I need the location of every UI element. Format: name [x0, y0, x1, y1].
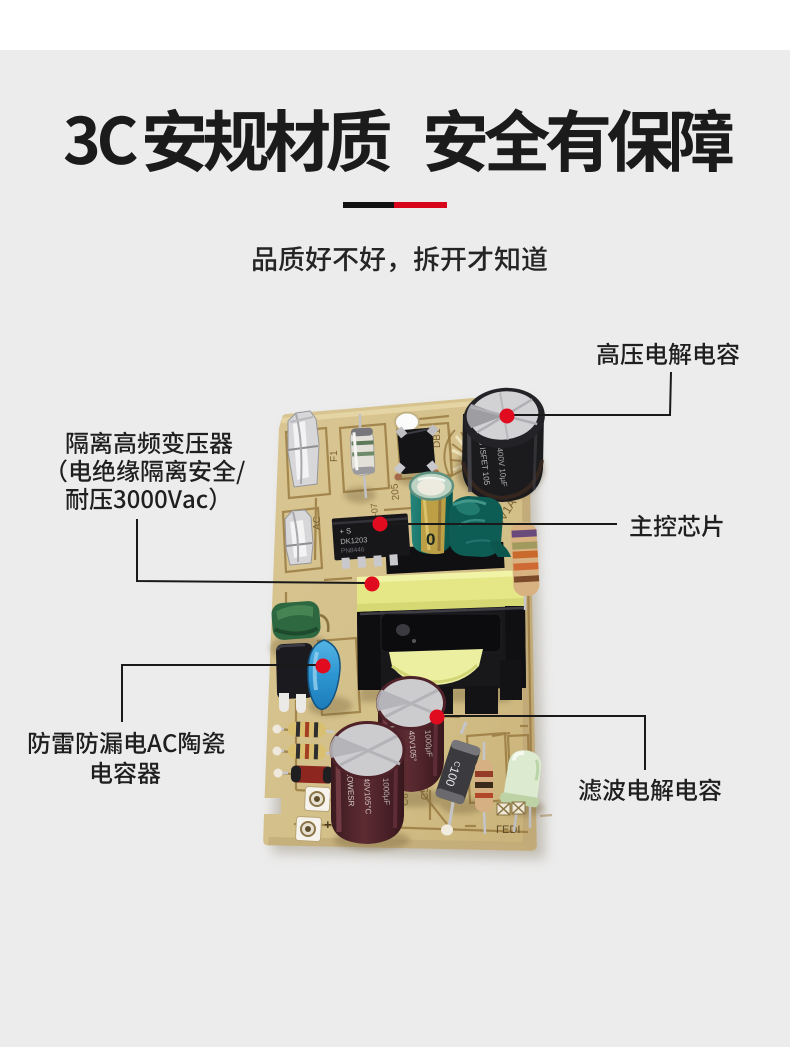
- svg-text:0: 0: [426, 530, 435, 549]
- svg-text:ΓEDI: ΓEDI: [496, 824, 520, 836]
- svg-text:AC: AC: [312, 516, 323, 530]
- svg-text:205: 205: [390, 483, 402, 501]
- svg-text:1000μF: 1000μF: [381, 778, 391, 806]
- svg-text:1000μF: 1000μF: [423, 730, 434, 758]
- svg-text:+: +: [324, 817, 332, 832]
- svg-text:F1: F1: [329, 450, 340, 462]
- svg-text:+ S: + S: [339, 526, 351, 536]
- svg-text:-07: -07: [369, 503, 380, 517]
- svg-text:40V105°C: 40V105°C: [362, 778, 373, 815]
- svg-text:DK1203: DK1203: [340, 535, 368, 546]
